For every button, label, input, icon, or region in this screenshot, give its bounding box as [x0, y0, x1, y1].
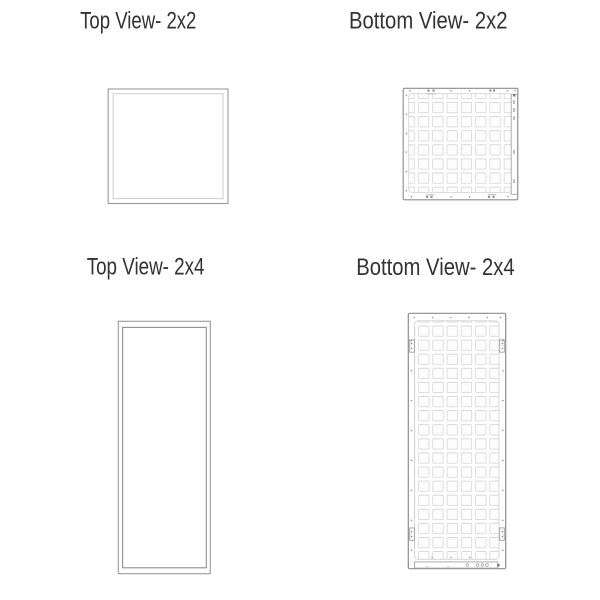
svg-text:Bottom View- 2x4: Bottom View- 2x4 — [356, 254, 515, 281]
svg-text:Top View- 2x4: Top View- 2x4 — [87, 253, 205, 280]
svg-text:Top View- 2x2: Top View- 2x2 — [80, 7, 196, 34]
svg-text:Bottom View- 2x2: Bottom View- 2x2 — [349, 8, 508, 35]
